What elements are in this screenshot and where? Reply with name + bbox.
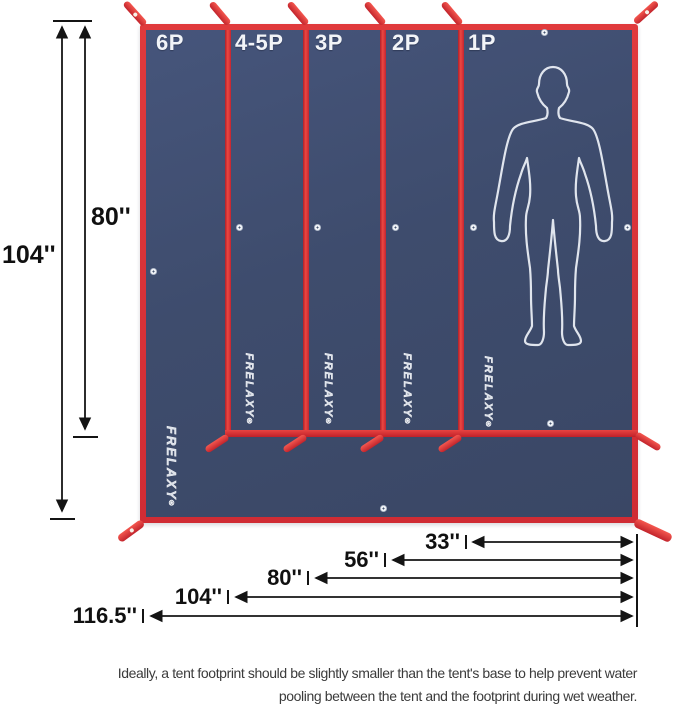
- caption-line-2: pooling between the tent and the footpri…: [20, 685, 637, 708]
- width-dimension-label-80: 80'': [267, 566, 302, 590]
- tie-loop-icon: [122, 0, 147, 27]
- width-dimensions-graphic: [130, 528, 650, 633]
- tie-loop-icon: [440, 1, 463, 27]
- registered-mark: ®: [404, 418, 411, 425]
- grommet: [150, 268, 157, 275]
- brand-logo: FRELAXY®: [482, 356, 494, 428]
- tie-loop-icon: [363, 1, 386, 27]
- panel-divider-4: [458, 30, 464, 430]
- grommet: [314, 224, 321, 231]
- brand-logo: FRELAXY®: [401, 353, 413, 425]
- panel-label-4-5p: 4-5P: [235, 30, 283, 56]
- width-dimension-label-116-5: 116.5'': [73, 604, 137, 628]
- grommet: [624, 224, 631, 231]
- height-dimension-label-104: 104'': [2, 242, 56, 268]
- tie-loop-icon: [633, 0, 660, 25]
- inner-bottom-edge: [225, 430, 638, 437]
- grommet: [470, 224, 477, 231]
- width-dimension-label-56: 56'': [344, 548, 379, 572]
- human-figure-outline: [486, 64, 622, 350]
- panel-divider-2: [303, 30, 309, 430]
- product-infographic: 6P 4-5P 3P 2P 1P FRELAXY® FRELAXY® FRELA…: [0, 0, 679, 708]
- grommet: [380, 505, 387, 512]
- tie-loop-icon: [634, 431, 662, 451]
- height-dimensions-graphic: [45, 14, 115, 529]
- panel-divider-3: [380, 30, 386, 430]
- brand-logo: FRELAXY®: [164, 426, 179, 508]
- grommet: [236, 224, 243, 231]
- registered-mark: ®: [325, 418, 332, 425]
- grommet: [541, 29, 548, 36]
- caption-line-1: Ideally, a tent footprint should be slig…: [20, 662, 637, 685]
- tie-loop-icon: [286, 1, 309, 27]
- caption: Ideally, a tent footprint should be slig…: [20, 662, 637, 708]
- brand-logo: FRELAXY®: [243, 353, 255, 425]
- tie-loop-icon: [208, 1, 231, 27]
- registered-mark: ®: [246, 418, 253, 425]
- panel-label-1p: 1P: [468, 30, 496, 56]
- strap-buckle: [644, 9, 650, 15]
- panel-divider-1: [225, 30, 231, 430]
- width-dimension-label-33: 33'': [425, 530, 460, 554]
- panel-label-3p: 3P: [315, 30, 343, 56]
- grommet: [547, 420, 554, 427]
- registered-mark: ®: [485, 421, 492, 428]
- panel-label-2p: 2P: [392, 30, 420, 56]
- strap-buckle: [133, 11, 139, 17]
- panel-label-6p: 6P: [156, 30, 184, 56]
- brand-logo: FRELAXY®: [322, 353, 334, 425]
- height-dimension-label-80: 80'': [91, 204, 131, 230]
- grommet: [392, 224, 399, 231]
- registered-mark: ®: [168, 501, 175, 508]
- width-dimension-label-104: 104'': [175, 585, 222, 609]
